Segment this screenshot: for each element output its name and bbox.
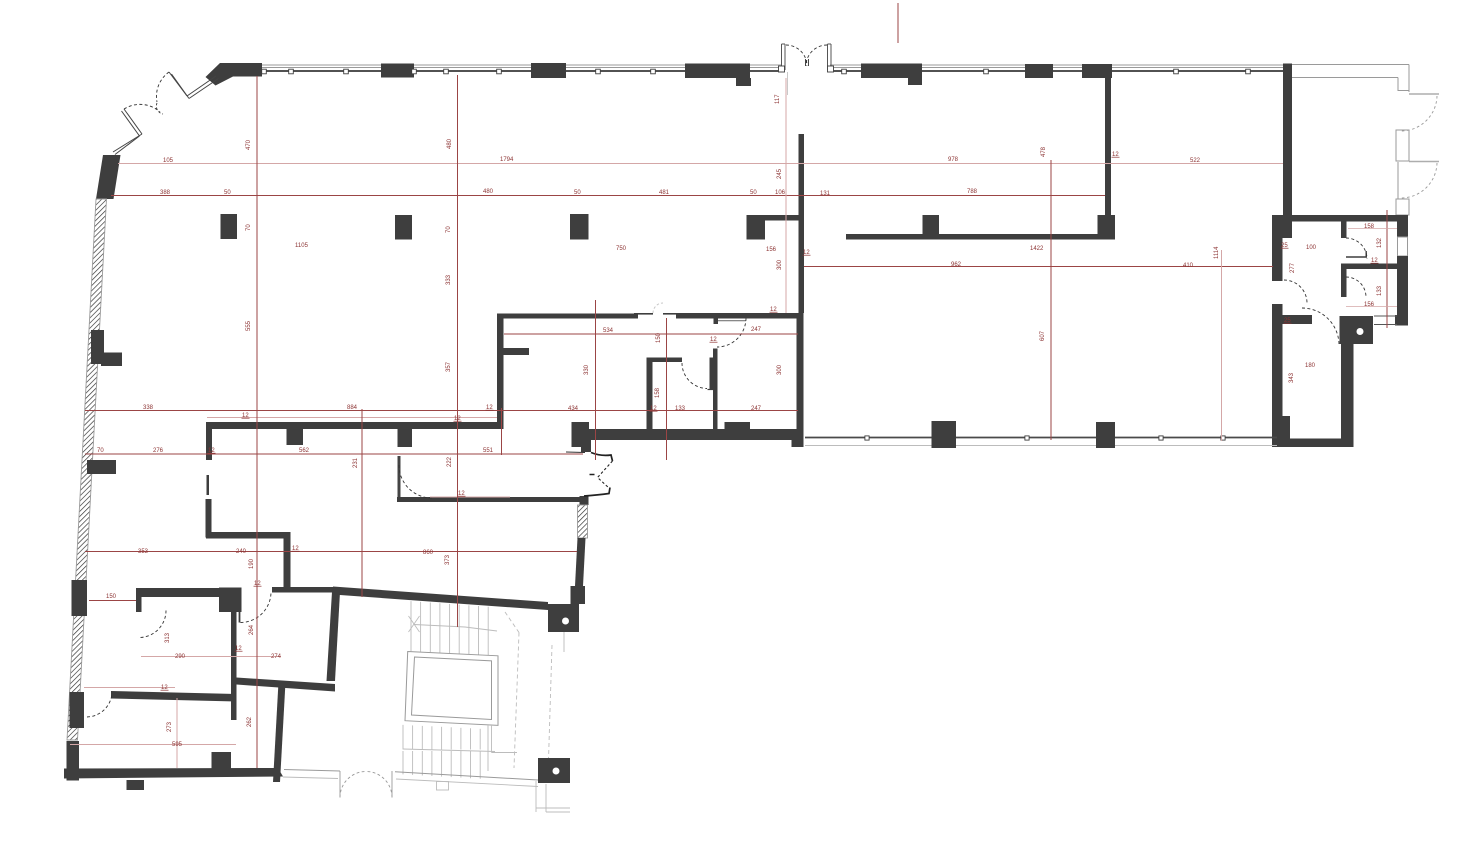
svg-text:410: 410: [1183, 263, 1194, 269]
svg-text:156: 156: [766, 247, 777, 253]
svg-text:788: 788: [967, 189, 978, 195]
svg-text:1794: 1794: [500, 157, 514, 163]
svg-text:264: 264: [249, 624, 255, 635]
svg-text:117: 117: [775, 94, 781, 104]
svg-text:978: 978: [948, 157, 959, 163]
svg-text:884: 884: [347, 405, 358, 411]
svg-text:156: 156: [1364, 302, 1375, 308]
svg-text:481: 481: [659, 190, 670, 196]
svg-text:133: 133: [1377, 285, 1383, 296]
svg-text:480: 480: [447, 138, 453, 149]
svg-text:313: 313: [165, 632, 171, 643]
svg-text:240: 240: [236, 549, 247, 555]
svg-text:750: 750: [616, 246, 627, 252]
svg-text:962: 962: [951, 262, 962, 268]
svg-text:343: 343: [1289, 372, 1295, 383]
svg-text:50: 50: [750, 190, 757, 196]
svg-text:333: 333: [446, 274, 452, 285]
svg-text:534: 534: [603, 328, 614, 334]
svg-text:131: 131: [820, 191, 831, 197]
svg-text:1114: 1114: [1214, 246, 1220, 259]
svg-text:480: 480: [483, 189, 494, 195]
svg-text:434: 434: [568, 406, 579, 412]
svg-text:262: 262: [247, 716, 253, 727]
svg-text:105: 105: [163, 158, 174, 164]
svg-text:373: 373: [445, 554, 451, 565]
svg-text:860: 860: [423, 550, 434, 556]
svg-text:70: 70: [246, 224, 252, 231]
svg-text:277: 277: [1290, 262, 1296, 273]
svg-text:1105: 1105: [295, 243, 309, 249]
svg-text:70: 70: [97, 448, 104, 454]
svg-text:562: 562: [299, 448, 310, 454]
svg-text:300: 300: [777, 364, 783, 375]
svg-text:245: 245: [777, 168, 783, 179]
svg-text:470: 470: [246, 139, 252, 150]
svg-text:357: 357: [446, 361, 452, 372]
svg-text:338: 338: [143, 405, 154, 411]
svg-text:353: 353: [138, 549, 149, 555]
svg-text:607: 607: [1040, 330, 1046, 341]
svg-text:158: 158: [1364, 224, 1375, 230]
svg-text:1422: 1422: [1030, 246, 1044, 252]
svg-text:274: 274: [271, 654, 282, 660]
svg-text:595: 595: [172, 742, 183, 748]
svg-text:388: 388: [160, 190, 171, 196]
svg-text:273: 273: [167, 721, 173, 732]
svg-text:222: 222: [447, 456, 453, 467]
svg-text:132: 132: [1377, 237, 1383, 248]
svg-text:555: 555: [246, 320, 252, 331]
svg-text:247: 247: [751, 327, 762, 333]
svg-text:158: 158: [655, 387, 661, 398]
svg-text:290: 290: [175, 654, 186, 660]
svg-text:150: 150: [106, 594, 117, 600]
svg-text:50: 50: [224, 190, 231, 196]
svg-text:276: 276: [153, 448, 164, 454]
svg-text:133: 133: [675, 406, 686, 412]
svg-text:150: 150: [656, 332, 662, 343]
svg-text:551: 551: [483, 448, 494, 454]
svg-text:478: 478: [1041, 146, 1047, 157]
svg-text:180: 180: [1305, 363, 1316, 369]
svg-text:50: 50: [574, 190, 581, 196]
svg-text:100: 100: [1306, 245, 1317, 251]
svg-text:70: 70: [446, 226, 452, 233]
svg-text:300: 300: [777, 259, 783, 270]
svg-text:247: 247: [751, 406, 762, 412]
svg-text:330: 330: [584, 364, 590, 375]
svg-text:522: 522: [1190, 158, 1201, 164]
svg-text:231: 231: [353, 457, 359, 468]
svg-text:190: 190: [249, 558, 255, 569]
svg-text:106: 106: [775, 190, 786, 196]
